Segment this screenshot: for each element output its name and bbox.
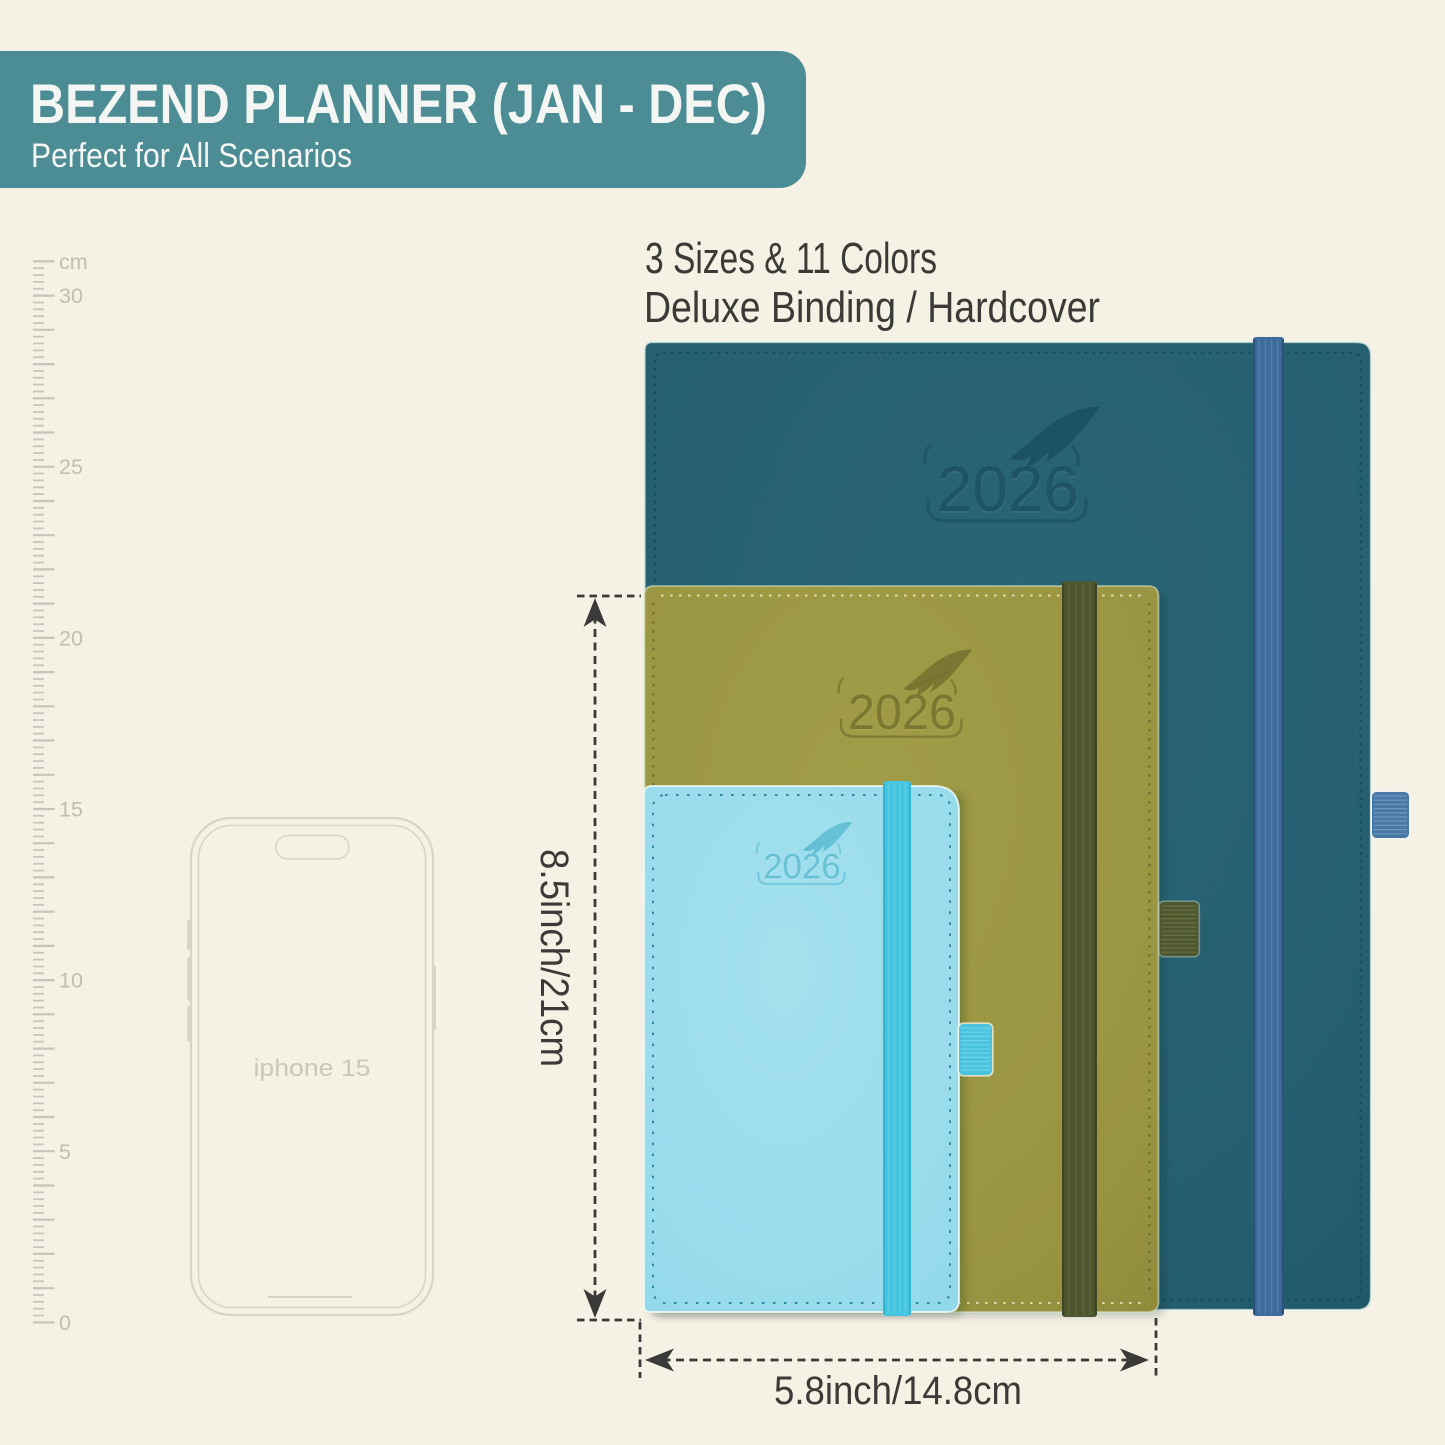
- svg-text:20: 20: [59, 626, 83, 650]
- svg-text:30: 30: [59, 284, 83, 308]
- svg-text:BEZEND PLANNER (JAN - DEC): BEZEND PLANNER (JAN - DEC): [30, 72, 767, 135]
- svg-text:2026: 2026: [763, 848, 840, 887]
- svg-text:Perfect for All Scenarios: Perfect for All Scenarios: [31, 137, 352, 175]
- svg-text:cm: cm: [59, 250, 88, 274]
- svg-text:0: 0: [59, 1311, 71, 1335]
- svg-text:10: 10: [59, 969, 83, 993]
- svg-text:Deluxe Binding / Hardcover: Deluxe Binding / Hardcover: [644, 283, 1100, 332]
- svg-text:3 Sizes & 11 Colors: 3 Sizes & 11 Colors: [645, 234, 937, 283]
- svg-text:2026: 2026: [848, 686, 956, 740]
- svg-text:15: 15: [59, 798, 83, 822]
- svg-text:iphone 15: iphone 15: [254, 1055, 371, 1082]
- svg-text:5.8inch/14.8cm: 5.8inch/14.8cm: [774, 1369, 1022, 1413]
- svg-text:5: 5: [59, 1140, 71, 1164]
- svg-text:2026: 2026: [937, 453, 1079, 525]
- svg-text:8.5inch/21cm: 8.5inch/21cm: [532, 849, 576, 1067]
- svg-text:25: 25: [59, 455, 83, 479]
